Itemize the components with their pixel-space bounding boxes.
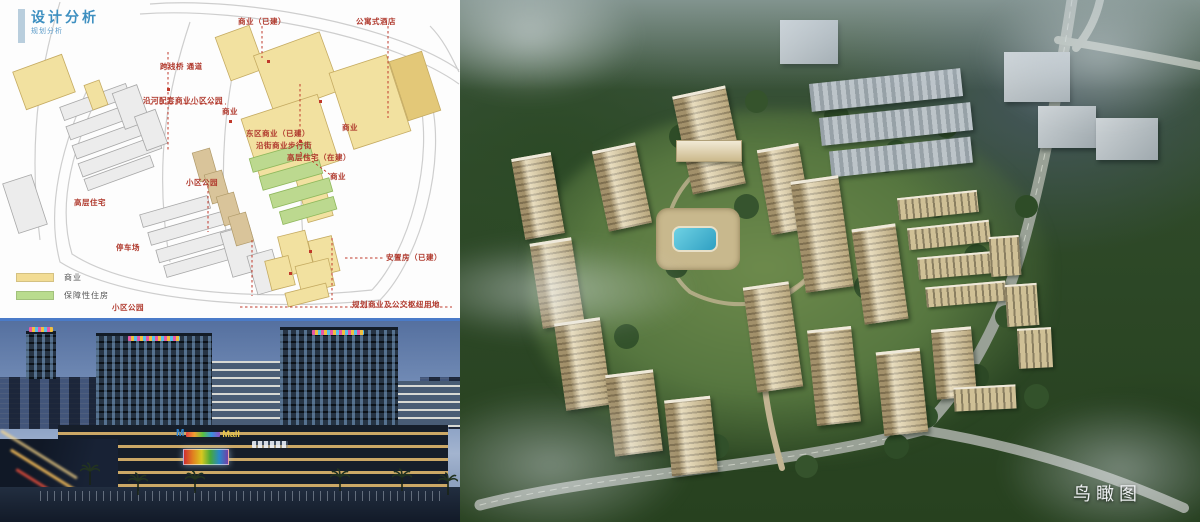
plan-label: 沿街商业步行街	[256, 140, 312, 151]
panel-title: 设计分析	[31, 7, 99, 27]
mall-tower-right	[280, 327, 398, 427]
midrise-slab	[1005, 283, 1040, 327]
plan-label: 东区商业（已建）	[246, 128, 310, 139]
legend-label: 保障性住房	[64, 290, 109, 301]
title-accent-bar	[18, 9, 25, 43]
plan-label: 商业（已建）	[238, 16, 286, 27]
mall-rendering-panel: M Mall	[0, 321, 460, 522]
aerial-caption: 鸟瞰图	[1073, 480, 1142, 506]
palm-tree-icon	[80, 461, 100, 485]
mall-sign-initial: M	[176, 429, 184, 439]
legend-label: 商业	[64, 272, 82, 283]
mall-sign-rainbow-characters	[186, 432, 220, 437]
palm-tree-icon	[128, 471, 148, 495]
plan-legend: 商业 保障性住房	[16, 272, 109, 308]
plan-label: 小区公园	[186, 177, 218, 188]
plan-commercial-blocks	[13, 25, 441, 307]
palm-tree-icon	[330, 467, 350, 491]
plan-residential-blocks	[3, 83, 283, 294]
palm-tree-icon	[438, 471, 458, 495]
mall-tower-left-logo-sign	[128, 336, 180, 341]
site-plan-drawing	[0, 0, 460, 318]
mall-tower-left	[96, 333, 212, 427]
midrise-slab	[989, 235, 1022, 277]
secondary-mall-sign	[252, 441, 288, 448]
plan-label: 沿河配套商业小区公园	[143, 95, 223, 106]
legend-swatch-yellow	[16, 273, 54, 282]
mall-main-sign: M Mall	[176, 429, 240, 439]
plan-label: 高层住宅	[74, 197, 106, 208]
aerial-view-panel: 鸟瞰图	[460, 0, 1200, 522]
swimming-pool	[672, 226, 718, 252]
mall-tower-right-logo-sign	[312, 330, 364, 335]
site-plan-panel: 设计分析 规划分析 商业（已建） 公寓式酒店 跨线桥 通道 沿河配套商业小区公园…	[0, 0, 460, 318]
plan-label: 高层住宅（在建）	[287, 152, 351, 163]
plan-label: 小区公园	[112, 302, 144, 313]
crowd-of-people	[40, 491, 440, 501]
midrise-slab	[1017, 327, 1053, 369]
plan-label: 规划商业及公交枢纽用地	[352, 299, 440, 310]
plan-label: 安置房（已建）	[386, 252, 442, 263]
plan-label: 公寓式酒店	[356, 16, 396, 27]
legend-item-affordable: 保障性住房	[16, 290, 109, 301]
legend-swatch-green	[16, 291, 54, 300]
mid-rise-lit-block	[212, 361, 280, 427]
led-screen	[183, 449, 229, 465]
small-tower-logo	[29, 327, 53, 332]
palm-tree-icon	[185, 469, 205, 493]
presentation-board: 设计分析 规划分析 商业（已建） 公寓式酒店 跨线桥 通道 沿河配套商业小区公园…	[0, 0, 1200, 522]
clubhouse	[676, 140, 742, 162]
panel-subtitle: 规划分析	[31, 26, 63, 36]
legend-item-commercial: 商业	[16, 272, 109, 283]
palm-tree-icon	[392, 467, 412, 491]
plan-label: 停车场	[116, 242, 140, 253]
small-office-tower	[26, 331, 56, 379]
plan-label: 商业	[330, 171, 346, 182]
plan-label: 跨线桥 通道	[160, 61, 203, 72]
right-low-building	[398, 381, 460, 427]
plan-label: 商业	[342, 122, 358, 133]
midrise-slab	[953, 384, 1016, 411]
mall-sign-text: Mall	[222, 430, 240, 439]
plan-label: 商业	[222, 106, 238, 117]
residential-tower	[876, 348, 929, 436]
